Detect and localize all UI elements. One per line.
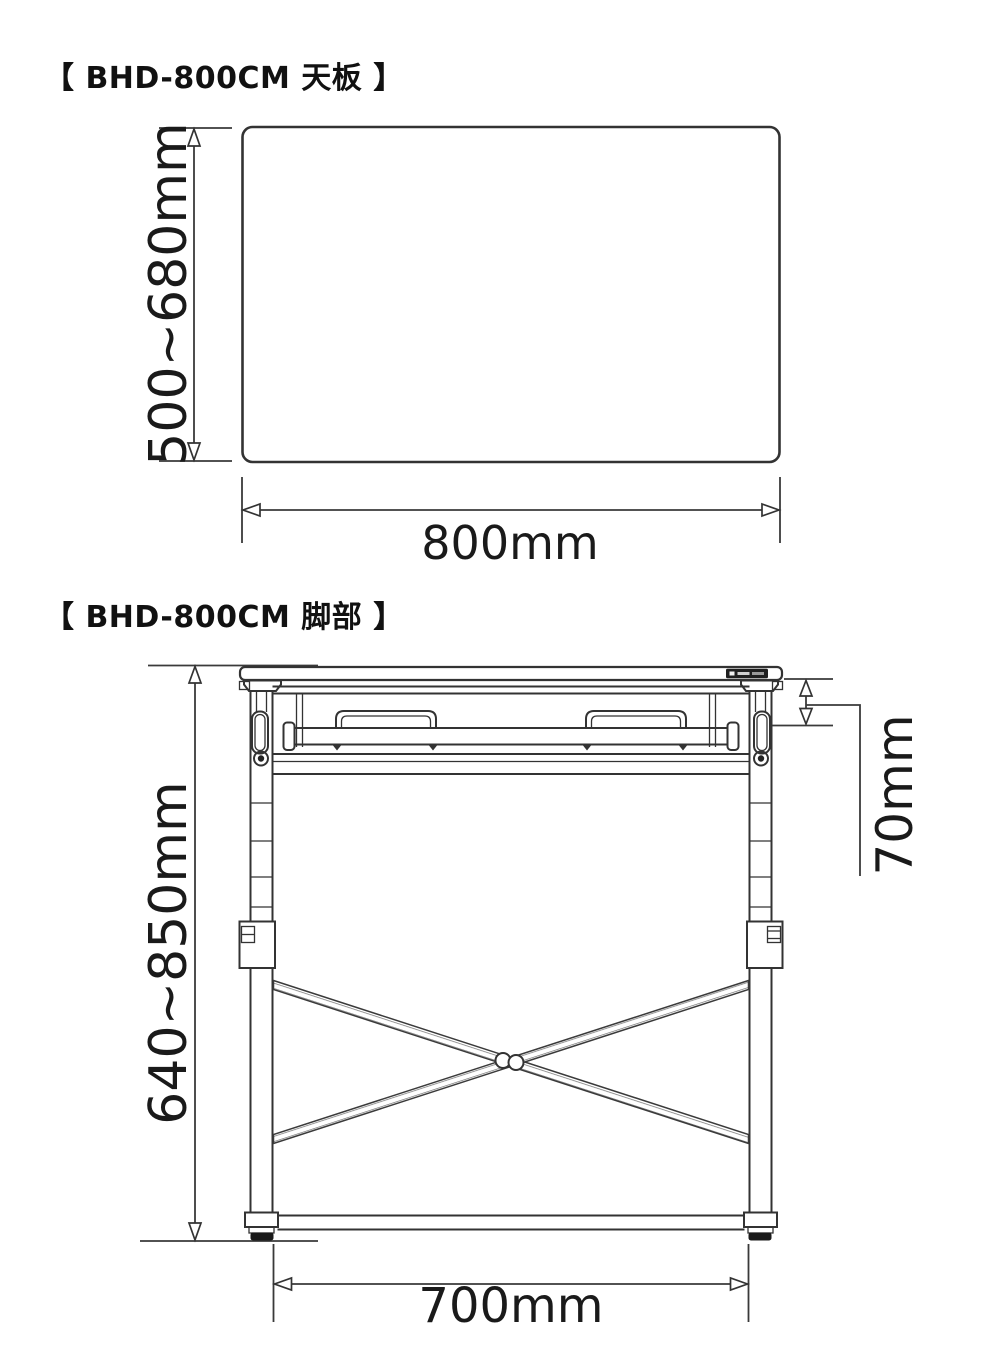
clamp-offset-label: 70mm: [866, 714, 924, 875]
arrow-left-icon: [275, 1278, 292, 1290]
arrow-left-icon: [243, 504, 260, 516]
leg-front-view: 640~850mm: [139, 666, 924, 1335]
left-handle: [336, 711, 436, 728]
brace-pivot-bolt: [509, 1055, 524, 1070]
arrow-up-icon: [800, 681, 812, 697]
left-clamp-lever: [252, 712, 268, 766]
topview-width-dimension: 800mm: [242, 477, 780, 570]
support-pipe: [284, 723, 739, 751]
legview-height-label: 640~850mm: [139, 781, 199, 1124]
tabletop-top-view: 500~680mm 800mm: [139, 122, 780, 570]
arrow-down-icon: [800, 709, 812, 725]
right-foot-pad: [749, 1233, 772, 1241]
base-assembly: [245, 1213, 777, 1241]
tabletop-side: [240, 667, 782, 680]
tabletop-outline: [243, 127, 780, 462]
brand-badge: [726, 669, 768, 679]
topview-height-label: 500~680mm: [139, 122, 199, 465]
frame-assembly: [252, 687, 770, 775]
arrow-up-icon: [189, 667, 201, 684]
cross-brace: [274, 981, 749, 1144]
right-clamp-lever: [754, 712, 770, 766]
arrow-right-icon: [731, 1278, 748, 1290]
right-handle: [586, 711, 686, 728]
arrow-down-icon: [189, 1223, 201, 1240]
topview-width-label: 800mm: [421, 516, 598, 570]
arrow-right-icon: [762, 504, 779, 516]
left-clamp-block: [240, 922, 276, 969]
clamp-offset-dimension: 70mm: [772, 679, 924, 876]
topview-height-dimension: 500~680mm: [139, 122, 232, 465]
legview-width-label: 700mm: [418, 1278, 603, 1334]
dimension-sheet: 【 BHD-800CM 天板 】 【 BHD-800CM 脚部 】 500~68…: [0, 0, 1000, 1350]
legview-height-dimension: 640~850mm: [139, 666, 318, 1242]
technical-drawing: 500~680mm 800mm 640: [0, 0, 1000, 1350]
right-clamp-block: [747, 922, 783, 969]
legview-width-dimension: 700mm: [274, 1244, 749, 1334]
left-foot-pad: [251, 1233, 274, 1241]
